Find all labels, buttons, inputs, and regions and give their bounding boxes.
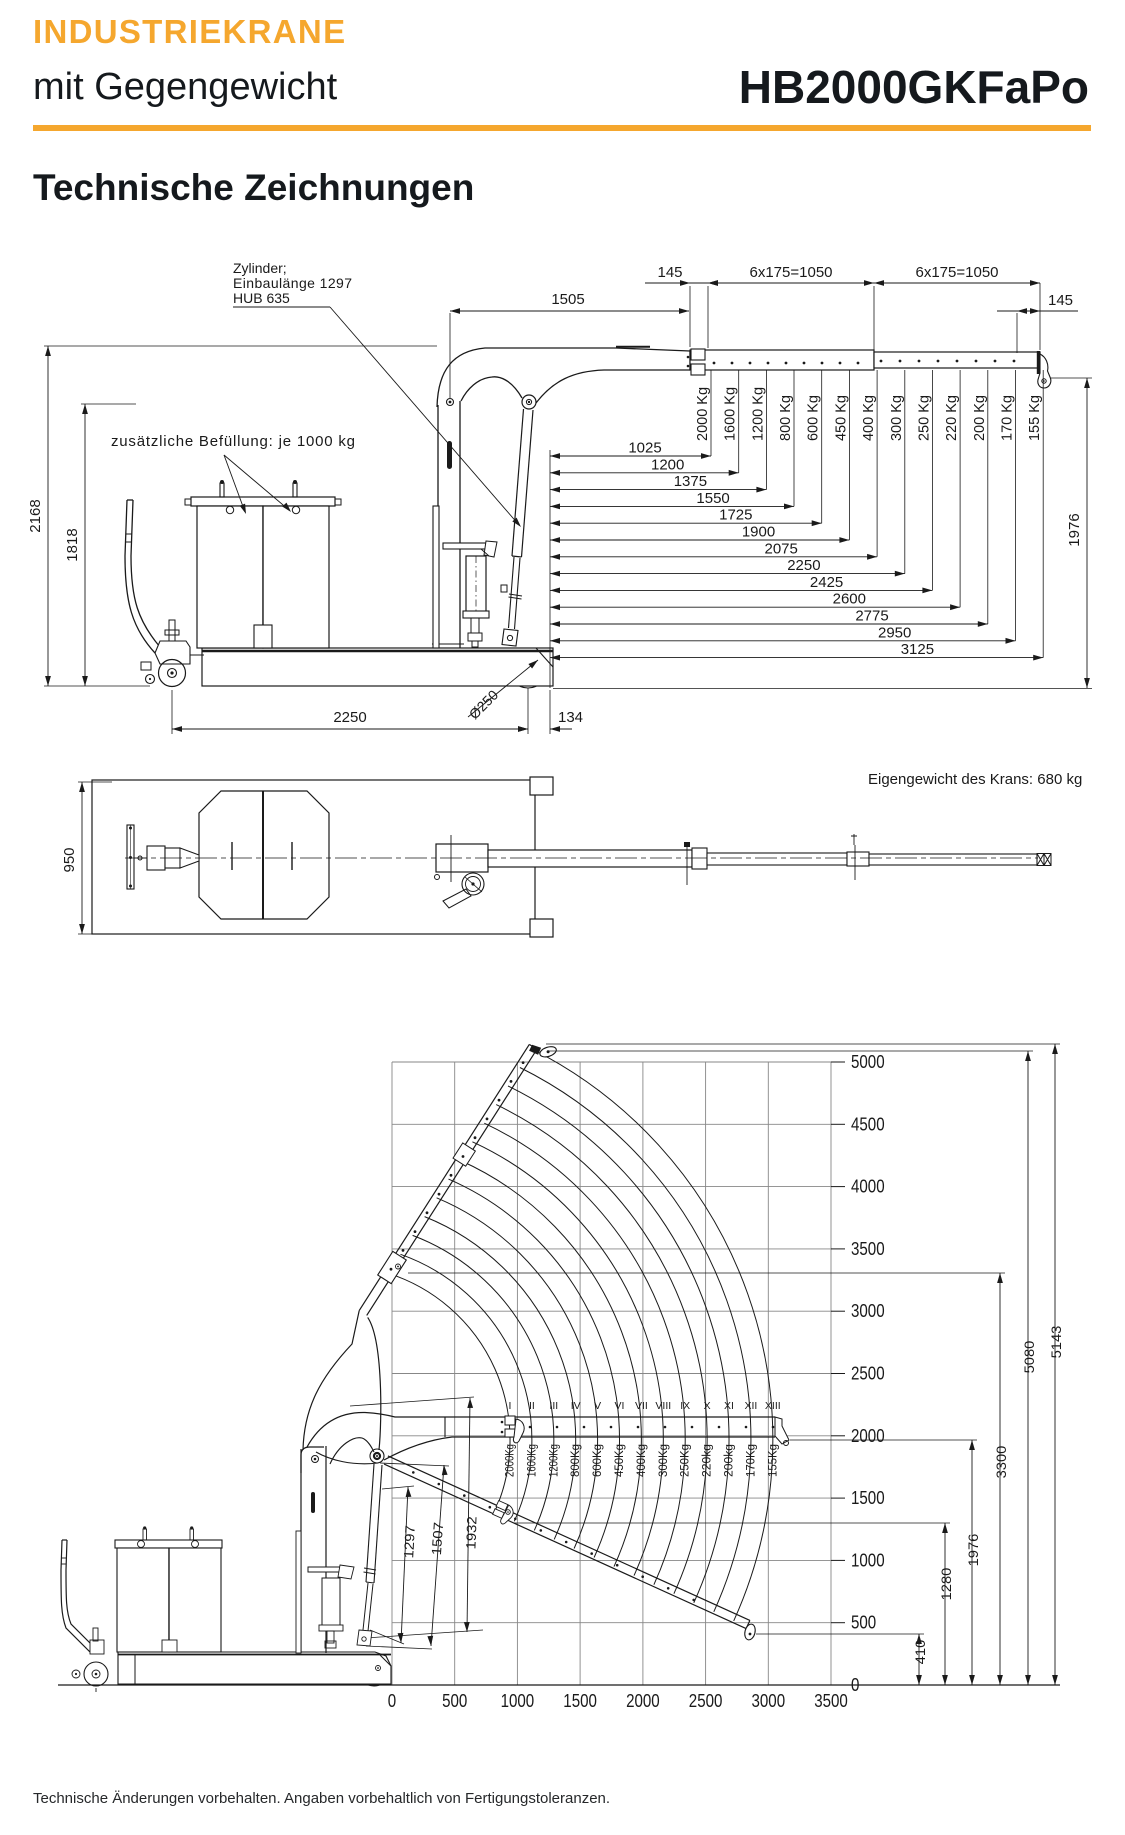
svg-text:170Kg: 170Kg: [745, 1444, 757, 1477]
svg-text:V: V: [594, 1400, 601, 1412]
svg-text:1000: 1000: [851, 1550, 885, 1570]
svg-text:170 Kg: 170 Kg: [1000, 395, 1016, 441]
svg-text:800Kg: 800Kg: [570, 1444, 582, 1477]
svg-text:XIII: XIII: [765, 1400, 781, 1412]
svg-text:1725: 1725: [719, 507, 752, 524]
svg-text:1200 Kg: 1200 Kg: [750, 387, 766, 441]
svg-text:400 Kg: 400 Kg: [861, 395, 877, 441]
svg-text:3125: 3125: [901, 641, 934, 658]
svg-text:1507: 1507: [429, 1522, 446, 1556]
svg-text:500: 500: [442, 1691, 467, 1711]
svg-text:2950: 2950: [878, 624, 911, 641]
svg-text:1600 Kg: 1600 Kg: [723, 387, 739, 441]
svg-text:1976: 1976: [1066, 513, 1083, 546]
svg-text:IV: IV: [571, 1400, 581, 1412]
svg-text:1025: 1025: [628, 440, 661, 457]
svg-text:4000: 4000: [851, 1177, 885, 1197]
svg-text:1600Kg: 1600Kg: [526, 1444, 538, 1477]
svg-text:2000Kg: 2000Kg: [505, 1444, 517, 1477]
svg-text:3000: 3000: [851, 1301, 885, 1321]
svg-text:1297: 1297: [401, 1525, 418, 1559]
svg-text:410: 410: [913, 1640, 928, 1665]
svg-text:220kg: 220kg: [702, 1444, 714, 1477]
svg-text:1500: 1500: [851, 1488, 885, 1508]
svg-text:Einbaulänge 1297: Einbaulänge 1297: [233, 275, 352, 291]
svg-text:450Kg: 450Kg: [614, 1444, 626, 1477]
svg-text:300 Kg: 300 Kg: [889, 395, 905, 441]
svg-text:134: 134: [558, 709, 583, 726]
svg-text:VII: VII: [635, 1400, 648, 1412]
svg-text:XII: XII: [744, 1400, 757, 1412]
svg-text:600Kg: 600Kg: [592, 1444, 604, 1477]
svg-text:1505: 1505: [551, 291, 584, 308]
svg-text:145: 145: [657, 264, 682, 281]
svg-text:1375: 1375: [674, 473, 707, 490]
svg-text:3300: 3300: [994, 1446, 1009, 1479]
svg-text:2168: 2168: [27, 499, 44, 532]
svg-text:600 Kg: 600 Kg: [806, 395, 822, 441]
svg-text:155Kg: 155Kg: [767, 1444, 779, 1477]
svg-text:155 Kg: 155 Kg: [1027, 395, 1043, 441]
svg-text:6x175=1050: 6x175=1050: [916, 264, 999, 281]
svg-text:0: 0: [388, 1691, 396, 1711]
svg-text:2500: 2500: [689, 1691, 723, 1711]
svg-text:XI: XI: [724, 1400, 734, 1412]
svg-text:500: 500: [851, 1613, 876, 1633]
svg-text:2250: 2250: [787, 557, 820, 574]
svg-text:3500: 3500: [851, 1239, 885, 1259]
svg-text:2000 Kg: 2000 Kg: [695, 387, 711, 441]
svg-text:6x175=1050: 6x175=1050: [750, 264, 833, 281]
svg-text:300Kg: 300Kg: [658, 1444, 670, 1477]
svg-text:2500: 2500: [851, 1364, 885, 1384]
svg-text:2600: 2600: [833, 591, 866, 608]
svg-text:II: II: [529, 1400, 535, 1412]
svg-text:Ø250: Ø250: [466, 687, 502, 723]
svg-text:250Kg: 250Kg: [680, 1444, 692, 1477]
svg-text:2000: 2000: [626, 1691, 660, 1711]
svg-text:1932: 1932: [463, 1516, 479, 1550]
svg-text:2075: 2075: [765, 540, 798, 557]
svg-text:HUB 635: HUB 635: [233, 290, 290, 306]
svg-text:1280: 1280: [939, 1568, 954, 1601]
svg-text:Eigengewicht des Krans: 680 kg: Eigengewicht des Krans: 680 kg: [868, 771, 1082, 788]
svg-text:VI: VI: [615, 1400, 625, 1412]
svg-text:4500: 4500: [851, 1114, 885, 1134]
svg-text:X: X: [704, 1400, 711, 1412]
svg-text:2775: 2775: [855, 608, 888, 625]
svg-text:2000: 2000: [851, 1426, 885, 1446]
svg-text:1900: 1900: [742, 524, 775, 541]
svg-text:VIII: VIII: [655, 1400, 671, 1412]
svg-text:200 Kg: 200 Kg: [972, 395, 988, 441]
svg-text:5000: 5000: [851, 1052, 885, 1072]
svg-text:2250: 2250: [333, 709, 366, 726]
svg-text:IX: IX: [680, 1400, 690, 1412]
svg-text:1200Kg: 1200Kg: [548, 1444, 560, 1477]
svg-text:2425: 2425: [810, 574, 843, 591]
svg-text:zusätzliche Befüllung: je 1000: zusätzliche Befüllung: je 1000 kg: [111, 433, 355, 450]
svg-text:III: III: [549, 1400, 558, 1412]
svg-text:450 Kg: 450 Kg: [833, 395, 849, 441]
svg-text:1200: 1200: [651, 456, 684, 473]
svg-text:3000: 3000: [752, 1691, 786, 1711]
svg-text:800 Kg: 800 Kg: [778, 395, 794, 441]
svg-text:1000: 1000: [501, 1691, 535, 1711]
svg-text:200kg: 200kg: [724, 1444, 736, 1477]
svg-text:400Kg: 400Kg: [636, 1444, 648, 1477]
svg-text:1818: 1818: [64, 528, 81, 561]
svg-text:1500: 1500: [563, 1691, 597, 1711]
svg-text:1976: 1976: [966, 1534, 981, 1567]
svg-text:1550: 1550: [696, 490, 729, 507]
svg-text:5143: 5143: [1049, 1326, 1064, 1359]
svg-text:5080: 5080: [1022, 1341, 1037, 1374]
svg-text:3500: 3500: [814, 1691, 848, 1711]
svg-text:250 Kg: 250 Kg: [916, 395, 932, 441]
svg-text:I: I: [509, 1400, 512, 1412]
svg-text:220 Kg: 220 Kg: [944, 395, 960, 441]
svg-text:145: 145: [1048, 292, 1073, 309]
svg-text:950: 950: [61, 847, 78, 872]
svg-text:Zylinder;: Zylinder;: [233, 260, 287, 276]
